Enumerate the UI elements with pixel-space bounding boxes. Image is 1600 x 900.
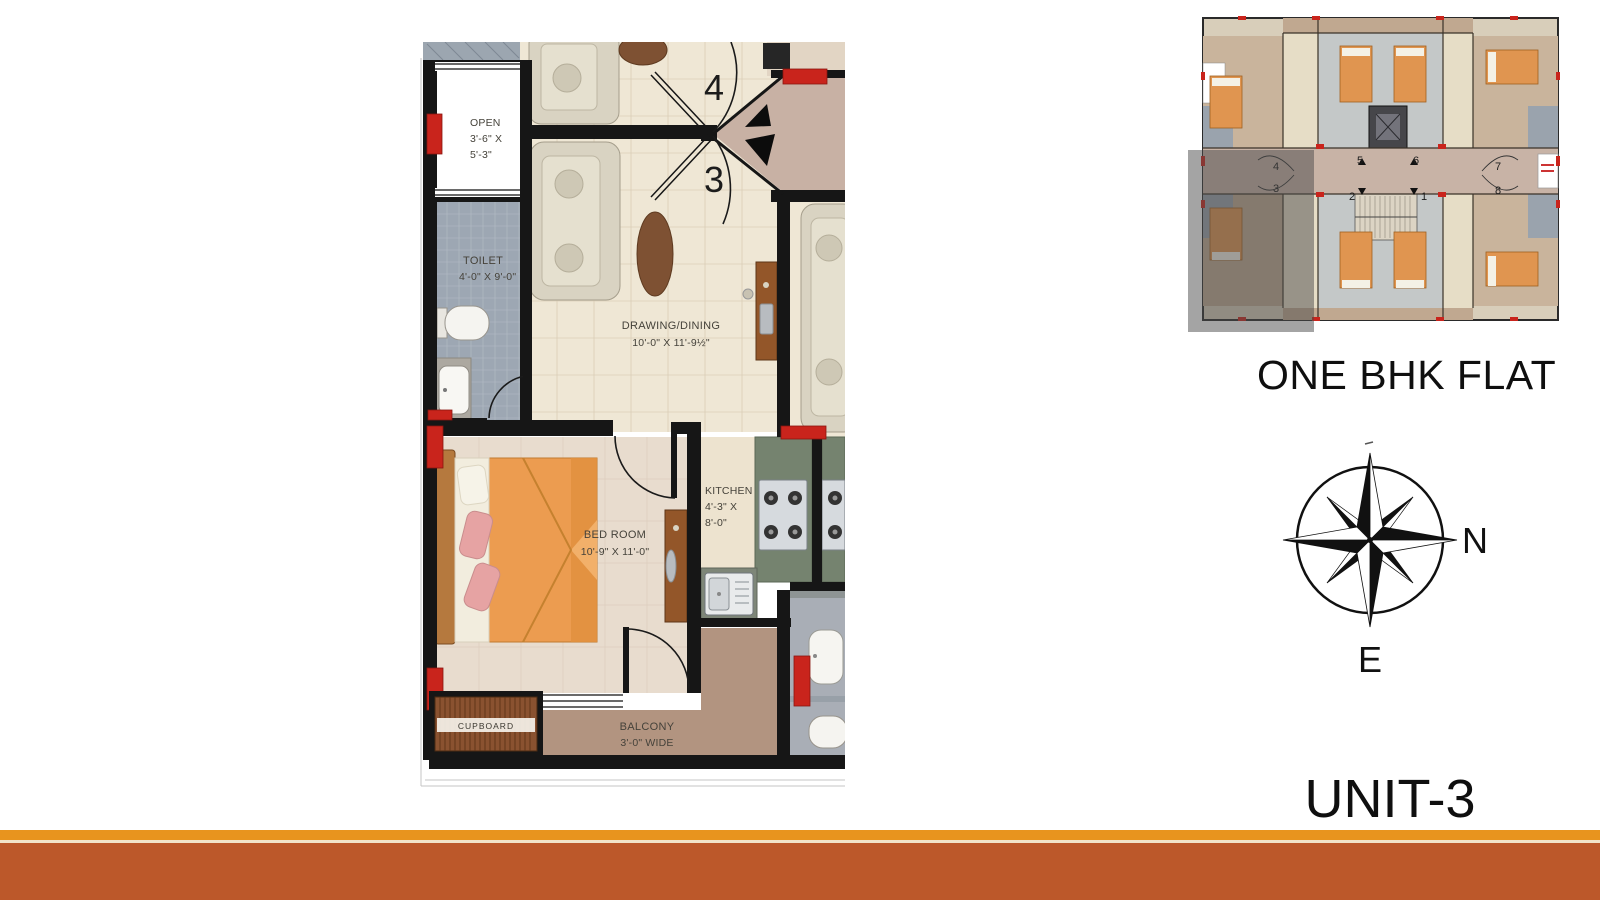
kitchen-label: KITCHEN xyxy=(705,485,753,497)
compass-east-label: E xyxy=(1358,639,1382,680)
unit3-highlight-overlay xyxy=(1188,150,1314,332)
kp-unit-2: 2 xyxy=(1349,191,1355,203)
sofa-long xyxy=(530,142,620,300)
kp-unit-5: 5 xyxy=(1357,155,1363,167)
sofa-upper xyxy=(529,42,619,124)
double-bed xyxy=(435,450,597,644)
page-title: ONE BHK FLAT xyxy=(1257,352,1519,399)
kitchen-dims-1: 4'-3" X xyxy=(705,501,737,513)
footer-accent-bar xyxy=(0,830,1600,840)
kp-unit-1: 1 xyxy=(1421,191,1427,203)
drawing-label: DRAWING/DINING xyxy=(622,320,721,332)
kitchen-dims-2: 8'-0" xyxy=(705,517,727,529)
dining-table xyxy=(637,212,673,296)
kp-unit-7: 7 xyxy=(1495,161,1501,173)
kp-unit-6: 6 xyxy=(1413,155,1419,167)
open-dims-2: 5'-3" xyxy=(470,149,492,161)
kp-balcony-top xyxy=(1283,18,1473,33)
sofa-adjacent-unit xyxy=(801,204,845,432)
kp-toilet-r1 xyxy=(1528,106,1558,148)
balcony-label: BALCONY xyxy=(620,721,675,733)
kitchen-sink xyxy=(701,568,757,620)
drawing-dims: 10'-0" X 11'-9½" xyxy=(632,337,710,349)
compass-rose: N E xyxy=(1253,440,1503,680)
compass-north-label: N xyxy=(1462,520,1488,561)
kitchen-counters xyxy=(755,437,845,582)
unit-number-label: UNIT-3 xyxy=(1290,768,1490,830)
toilet-dims: 4'-0" X 9'-0" xyxy=(459,271,516,283)
kp-toilet-r2 xyxy=(1528,194,1558,238)
kp-hall-1 xyxy=(1283,33,1318,148)
footer-band xyxy=(0,843,1600,900)
kp-hall-4 xyxy=(1443,194,1473,308)
toilet-wc xyxy=(437,306,489,340)
open-dims-1: 3'-6" X xyxy=(470,133,502,145)
bedroom-label: BED ROOM xyxy=(584,529,646,541)
kp-unit-8: 8 xyxy=(1495,185,1501,197)
entry-door-number-upper: 4 xyxy=(704,67,724,108)
bedroom-dims: 10'-9" X 11'-0" xyxy=(581,546,650,558)
entry-door-number-lower: 3 xyxy=(704,159,724,200)
open-label: OPEN xyxy=(470,117,501,129)
toilet-label: TOILET xyxy=(463,255,503,267)
dressing-table xyxy=(665,510,687,622)
compass-center xyxy=(1367,537,1373,543)
kp-hall-2 xyxy=(1443,33,1473,148)
cupboard-label: CUPBOARD xyxy=(458,721,514,731)
balcony-dims: 3'-0" WIDE xyxy=(620,737,673,749)
key-plan: 4 3 5 2 6 1 7 8 xyxy=(1188,8,1573,333)
kp-label-box xyxy=(1538,154,1558,188)
kp-lift xyxy=(1369,106,1407,148)
main-floor-plan: OPEN 3'-6" X 5'-3" TOILET 4'-0" X 9'-0" … xyxy=(415,42,845,792)
compass-tick xyxy=(1365,442,1373,444)
open-area-floor xyxy=(437,68,520,196)
